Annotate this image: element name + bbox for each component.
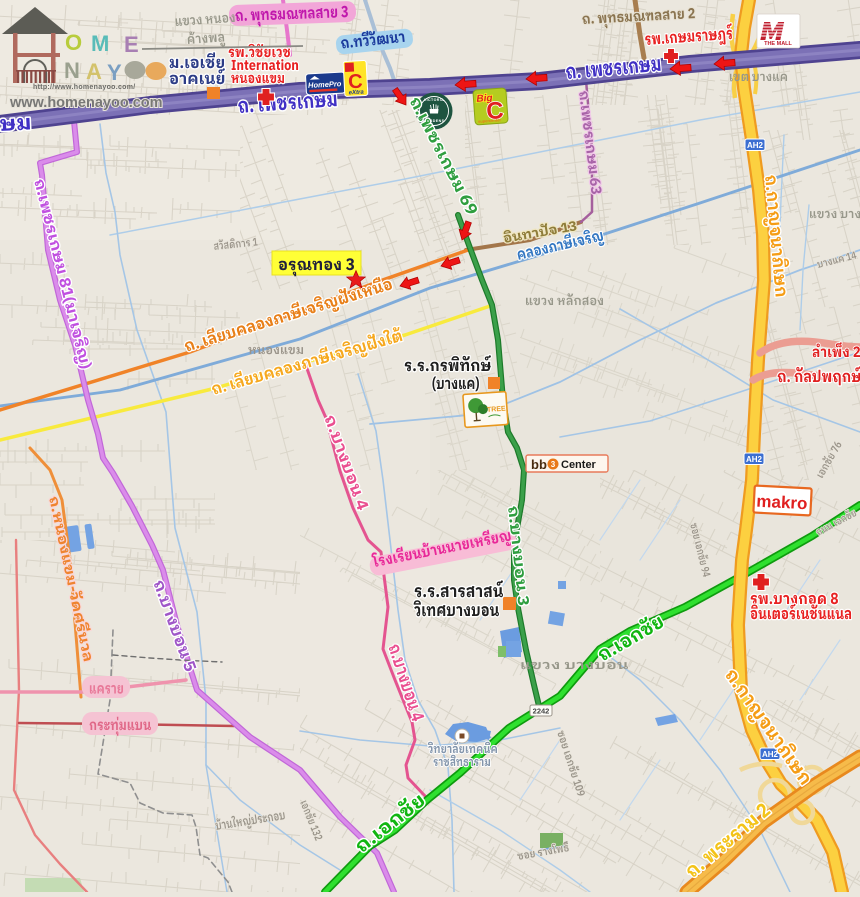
svg-text:N: N bbox=[64, 58, 80, 83]
svg-text:Y: Y bbox=[107, 60, 122, 85]
svg-text:3: 3 bbox=[551, 460, 556, 469]
svg-text:AH2: AH2 bbox=[747, 141, 764, 150]
svg-text:http://www.homenayoo.com/: http://www.homenayoo.com/ bbox=[33, 84, 136, 91]
svg-text:Center: Center bbox=[561, 459, 597, 471]
svg-text:AH2: AH2 bbox=[746, 455, 763, 464]
svg-text:2242: 2242 bbox=[533, 707, 550, 716]
svg-text:THE MALL: THE MALL bbox=[764, 41, 792, 47]
svg-text:bb: bb bbox=[531, 457, 547, 472]
svg-text:makro: makro bbox=[756, 492, 808, 514]
svg-text:M: M bbox=[91, 31, 109, 56]
svg-text:VICTORIA: VICTORIA bbox=[424, 98, 444, 102]
svg-text:www.homenayoo.com: www.homenayoo.com bbox=[9, 95, 163, 111]
svg-text:TREE: TREE bbox=[487, 406, 506, 414]
svg-text:A: A bbox=[86, 59, 102, 84]
svg-text:AH2: AH2 bbox=[762, 750, 779, 759]
svg-text:O: O bbox=[65, 30, 82, 55]
svg-text:E: E bbox=[124, 32, 139, 57]
svg-text:eXtra: eXtra bbox=[349, 90, 365, 97]
svg-text:HomePro: HomePro bbox=[308, 79, 342, 90]
